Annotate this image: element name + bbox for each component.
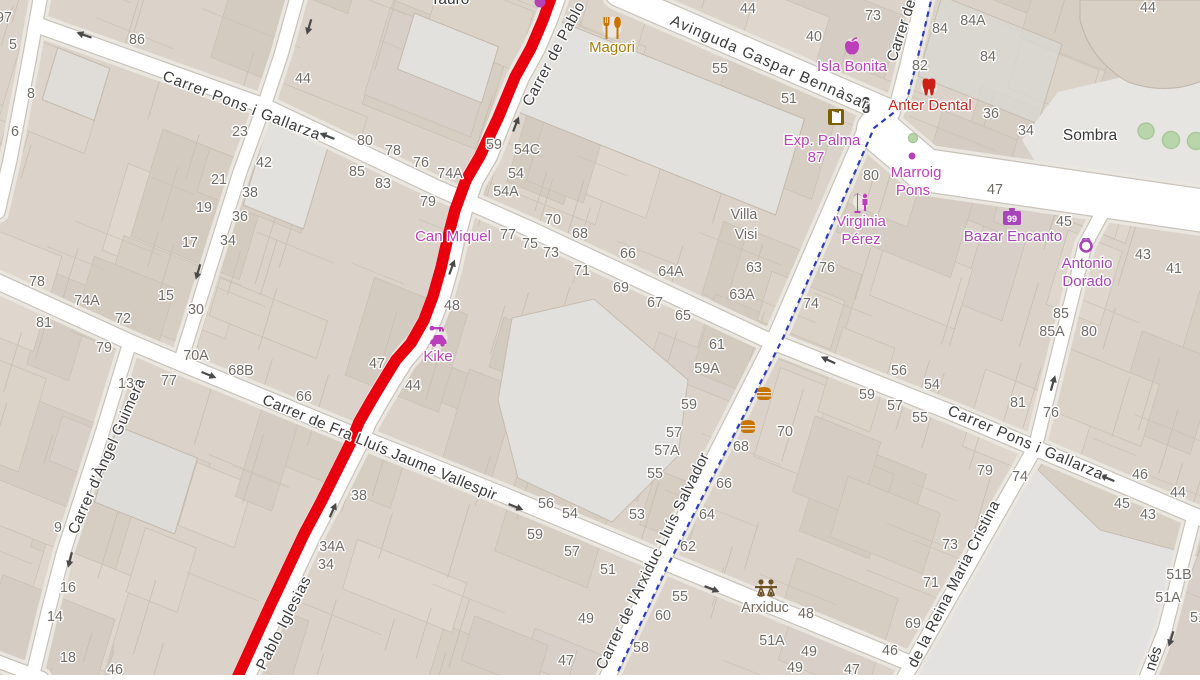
svg-text:15: 15 xyxy=(158,288,174,304)
svg-text:23: 23 xyxy=(232,124,248,140)
svg-text:Can Miquel: Can Miquel xyxy=(415,228,491,245)
svg-text:55: 55 xyxy=(912,410,928,426)
svg-text:13: 13 xyxy=(118,376,134,392)
svg-text:63: 63 xyxy=(746,260,762,276)
svg-text:Sombra: Sombra xyxy=(1063,127,1118,144)
svg-text:5: 5 xyxy=(9,37,17,53)
svg-text:21: 21 xyxy=(211,172,227,188)
svg-text:8: 8 xyxy=(27,86,35,102)
svg-text:Dorado: Dorado xyxy=(1062,273,1111,290)
svg-text:78: 78 xyxy=(385,143,401,159)
svg-text:79: 79 xyxy=(420,194,436,210)
svg-text:47: 47 xyxy=(558,653,574,669)
svg-text:59: 59 xyxy=(527,527,543,543)
svg-text:71: 71 xyxy=(574,263,590,279)
svg-text:49: 49 xyxy=(578,611,594,627)
svg-text:84: 84 xyxy=(932,21,948,37)
svg-text:59A: 59A xyxy=(694,361,720,377)
svg-text:73: 73 xyxy=(543,245,559,261)
svg-text:45: 45 xyxy=(1114,496,1130,512)
svg-text:82: 82 xyxy=(912,58,928,74)
svg-text:47: 47 xyxy=(987,182,1003,198)
svg-text:97: 97 xyxy=(0,10,12,26)
svg-text:72: 72 xyxy=(115,311,131,327)
svg-text:85A: 85A xyxy=(1039,324,1065,340)
svg-text:44: 44 xyxy=(405,378,421,394)
svg-text:30: 30 xyxy=(188,302,204,318)
svg-text:Tauro: Tauro xyxy=(431,0,470,8)
svg-text:64: 64 xyxy=(699,507,715,523)
svg-text:Antonio: Antonio xyxy=(1062,255,1113,272)
svg-text:71: 71 xyxy=(923,575,939,591)
svg-text:81: 81 xyxy=(36,315,52,331)
svg-text:64A: 64A xyxy=(658,264,684,280)
svg-text:84: 84 xyxy=(980,49,996,65)
svg-text:76: 76 xyxy=(1043,405,1059,421)
svg-text:70A: 70A xyxy=(183,348,209,364)
svg-text:Pons: Pons xyxy=(896,182,930,199)
svg-text:Arxiduc: Arxiduc xyxy=(741,600,789,616)
svg-text:68: 68 xyxy=(733,439,749,455)
svg-text:67: 67 xyxy=(647,295,663,311)
svg-text:86: 86 xyxy=(129,32,145,48)
svg-text:61: 61 xyxy=(709,337,725,353)
svg-text:69: 69 xyxy=(613,280,629,296)
svg-text:9: 9 xyxy=(54,520,62,536)
svg-text:55: 55 xyxy=(712,61,728,77)
svg-text:57A: 57A xyxy=(654,443,680,459)
svg-text:59: 59 xyxy=(486,137,502,153)
svg-text:51A: 51A xyxy=(1155,590,1181,606)
svg-text:48: 48 xyxy=(798,606,814,622)
svg-text:Pérez: Pérez xyxy=(841,231,880,248)
svg-text:51B: 51B xyxy=(1166,567,1191,583)
svg-text:76: 76 xyxy=(819,260,835,276)
svg-text:70: 70 xyxy=(545,212,561,228)
svg-text:54C: 54C xyxy=(514,142,540,158)
svg-text:46: 46 xyxy=(882,643,898,659)
svg-text:44: 44 xyxy=(1170,485,1186,501)
svg-text:Magori: Magori xyxy=(589,39,635,56)
svg-text:76: 76 xyxy=(413,155,429,171)
svg-text:Kike: Kike xyxy=(423,348,452,365)
svg-text:14: 14 xyxy=(47,609,63,625)
svg-text:44: 44 xyxy=(295,71,311,87)
svg-text:51: 51 xyxy=(781,91,797,107)
svg-text:54: 54 xyxy=(508,166,524,182)
svg-text:78: 78 xyxy=(29,274,45,290)
svg-text:66: 66 xyxy=(716,476,732,492)
svg-text:54: 54 xyxy=(924,377,940,393)
svg-text:41: 41 xyxy=(1166,261,1182,277)
svg-text:16: 16 xyxy=(60,580,76,596)
svg-text:63A: 63A xyxy=(729,287,755,303)
svg-text:44: 44 xyxy=(1140,0,1156,16)
svg-text:79: 79 xyxy=(96,340,112,356)
svg-text:68B: 68B xyxy=(228,363,253,379)
svg-text:73: 73 xyxy=(942,537,958,553)
svg-text:69: 69 xyxy=(905,616,921,632)
svg-text:87: 87 xyxy=(808,149,825,166)
svg-text:47: 47 xyxy=(369,356,385,372)
svg-text:65: 65 xyxy=(675,308,691,324)
svg-text:34: 34 xyxy=(220,233,236,249)
svg-text:34: 34 xyxy=(1018,123,1034,139)
svg-text:80: 80 xyxy=(1081,324,1097,340)
svg-text:59: 59 xyxy=(681,397,697,413)
svg-text:Visi: Visi xyxy=(735,227,758,243)
svg-text:59: 59 xyxy=(859,387,875,403)
svg-text:84A: 84A xyxy=(960,13,986,29)
svg-text:40: 40 xyxy=(806,29,822,45)
svg-text:34: 34 xyxy=(318,557,334,573)
svg-text:Villa: Villa xyxy=(731,207,758,223)
svg-text:Marroig: Marroig xyxy=(891,164,942,181)
svg-text:19: 19 xyxy=(196,200,212,216)
svg-text:62: 62 xyxy=(680,539,696,555)
svg-text:60: 60 xyxy=(655,608,671,624)
svg-text:38: 38 xyxy=(351,488,367,504)
svg-text:Isla Bonita: Isla Bonita xyxy=(817,58,888,75)
svg-text:73: 73 xyxy=(865,8,881,24)
svg-text:49: 49 xyxy=(787,660,803,675)
svg-text:85: 85 xyxy=(349,164,365,180)
svg-text:85: 85 xyxy=(1053,306,1069,322)
svg-text:17: 17 xyxy=(182,235,198,251)
svg-text:75: 75 xyxy=(522,236,538,252)
svg-text:18: 18 xyxy=(60,650,76,666)
svg-text:54: 54 xyxy=(562,506,578,522)
svg-text:68: 68 xyxy=(572,226,588,242)
svg-text:58: 58 xyxy=(633,640,649,656)
svg-text:74A: 74A xyxy=(437,166,463,182)
svg-text:Virginia: Virginia xyxy=(836,213,886,230)
svg-text:Anter Dental: Anter Dental xyxy=(888,97,971,114)
svg-text:83: 83 xyxy=(375,176,391,192)
svg-text:Bazar Encanto: Bazar Encanto xyxy=(964,228,1062,245)
svg-text:6: 6 xyxy=(11,124,19,140)
svg-text:55: 55 xyxy=(672,589,688,605)
svg-text:43: 43 xyxy=(1140,507,1156,523)
svg-text:46: 46 xyxy=(107,662,123,675)
svg-text:43: 43 xyxy=(1135,247,1151,263)
svg-text:99: 99 xyxy=(1007,214,1017,224)
svg-text:Exp. Palma: Exp. Palma xyxy=(784,132,861,149)
svg-text:70: 70 xyxy=(777,424,793,440)
svg-text:47: 47 xyxy=(844,662,860,675)
svg-text:42: 42 xyxy=(256,155,272,171)
svg-text:51A: 51A xyxy=(759,633,785,649)
svg-text:34A: 34A xyxy=(319,539,345,555)
svg-text:80: 80 xyxy=(357,133,373,149)
svg-text:77: 77 xyxy=(161,373,177,389)
svg-text:74: 74 xyxy=(1012,469,1028,485)
svg-text:66: 66 xyxy=(296,389,312,405)
svg-text:46: 46 xyxy=(1132,467,1148,483)
svg-text:74: 74 xyxy=(803,296,819,312)
svg-text:38: 38 xyxy=(242,185,258,201)
svg-text:45: 45 xyxy=(1056,214,1072,230)
svg-text:53: 53 xyxy=(629,507,645,523)
svg-text:57: 57 xyxy=(564,544,580,560)
svg-text:44: 44 xyxy=(740,1,756,17)
svg-text:54A: 54A xyxy=(493,184,519,200)
svg-text:81: 81 xyxy=(1010,395,1026,411)
svg-text:57: 57 xyxy=(666,425,682,441)
svg-text:79: 79 xyxy=(977,463,993,479)
svg-text:56: 56 xyxy=(891,363,907,379)
svg-text:66: 66 xyxy=(620,246,636,262)
svg-text:51: 51 xyxy=(1190,610,1200,626)
svg-text:51: 51 xyxy=(600,562,616,578)
svg-text:36: 36 xyxy=(983,106,999,122)
svg-text:74A: 74A xyxy=(74,293,100,309)
svg-text:80: 80 xyxy=(863,168,879,184)
svg-text:49: 49 xyxy=(801,644,817,660)
svg-text:77: 77 xyxy=(500,227,516,243)
svg-text:57: 57 xyxy=(887,398,903,414)
svg-text:48: 48 xyxy=(444,298,460,314)
svg-text:55: 55 xyxy=(647,466,663,482)
svg-text:36: 36 xyxy=(232,209,248,225)
svg-text:56: 56 xyxy=(538,496,554,512)
